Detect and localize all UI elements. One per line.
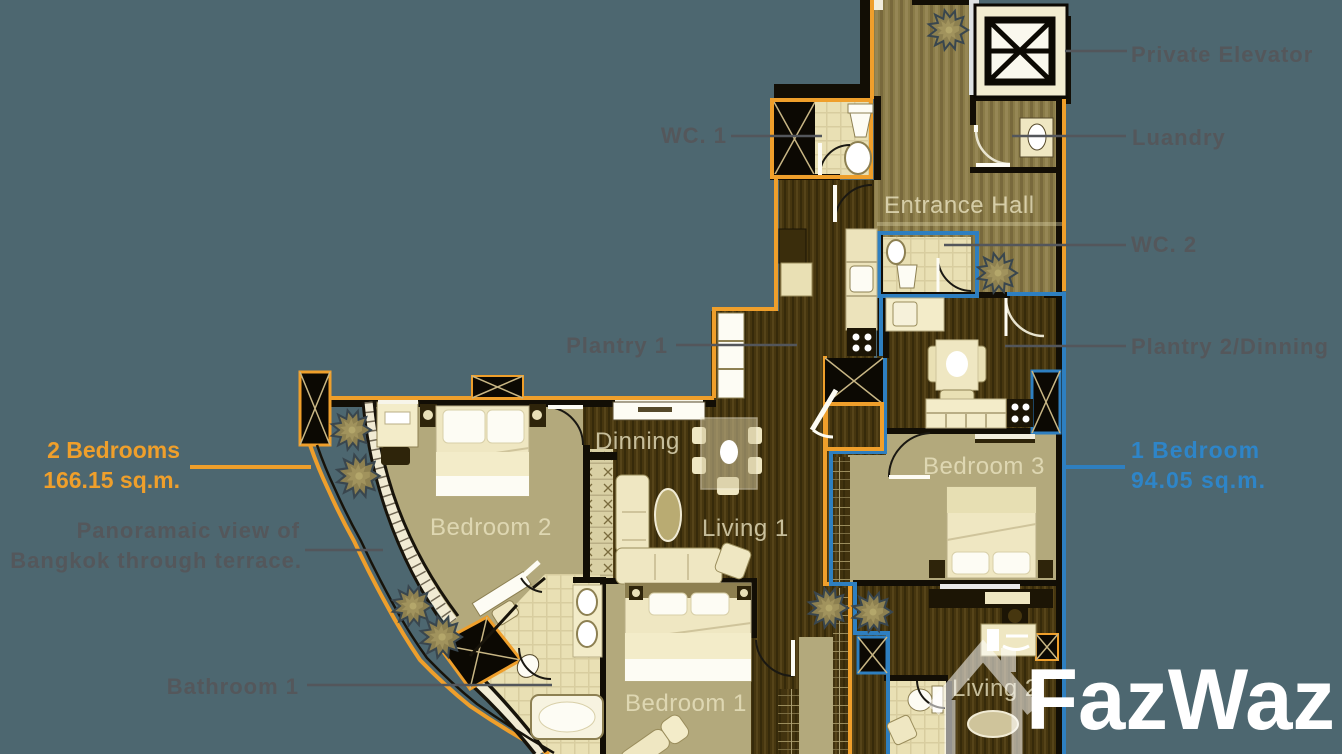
svg-text:2 Bedrooms: 2 Bedrooms (47, 437, 180, 463)
svg-text:Bedroom 3: Bedroom 3 (923, 453, 1045, 480)
svg-text:WC. 2: WC. 2 (1131, 232, 1197, 257)
svg-text:FazWaz: FazWaz (1026, 652, 1335, 748)
svg-text:Dinning: Dinning (595, 428, 680, 455)
svg-text:Luandry: Luandry (1132, 125, 1226, 150)
svg-text:Living 1: Living 1 (702, 515, 789, 542)
svg-text:Private Elevator: Private Elevator (1131, 42, 1313, 67)
svg-text:Bedroom 1: Bedroom 1 (625, 690, 747, 717)
svg-text:Entrance Hall: Entrance Hall (884, 192, 1035, 219)
svg-text:Plantry 1: Plantry 1 (566, 333, 668, 358)
svg-text:166.15 sq.m.: 166.15 sq.m. (43, 467, 180, 493)
svg-text:94.05 sq.m.: 94.05 sq.m. (1131, 467, 1266, 493)
svg-text:Plantry 2/Dinning: Plantry 2/Dinning (1131, 334, 1329, 359)
svg-text:WC. 1: WC. 1 (661, 123, 727, 148)
svg-text:Bangkok through terrace.: Bangkok through terrace. (10, 548, 302, 573)
svg-text:Bedroom 2: Bedroom 2 (430, 514, 552, 541)
svg-text:1 Bedroom: 1 Bedroom (1131, 437, 1260, 463)
svg-text:Panoramaic view of: Panoramaic view of (77, 518, 300, 543)
svg-text:Bathroom 1: Bathroom 1 (167, 674, 299, 699)
